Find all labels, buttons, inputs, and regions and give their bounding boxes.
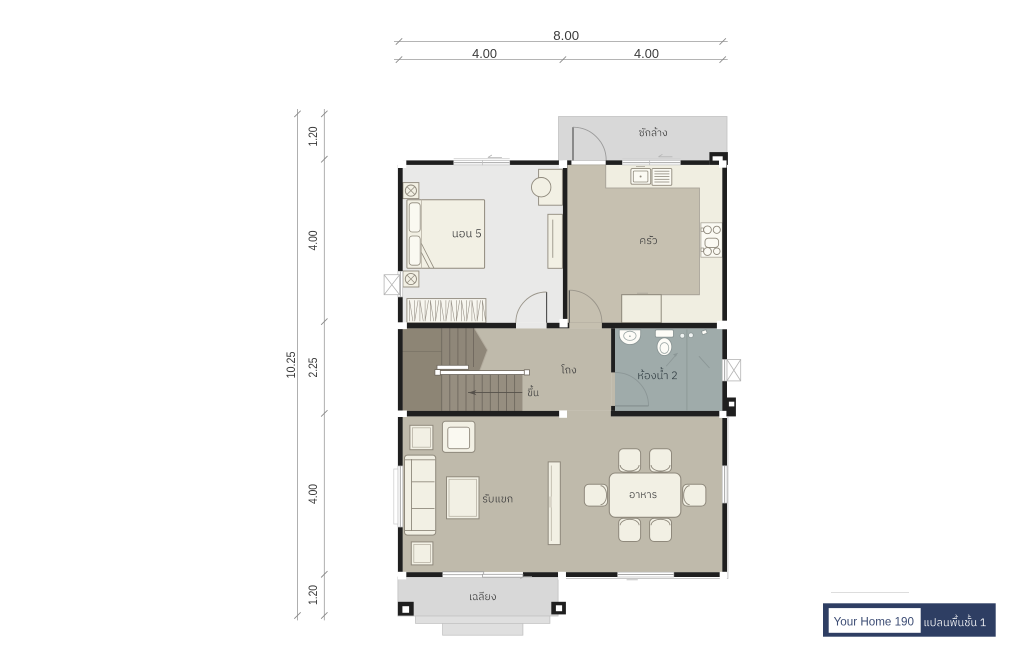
svg-text:4.00: 4.00 bbox=[472, 46, 497, 61]
svg-text:8.00: 8.00 bbox=[553, 28, 579, 43]
svg-text:10.25: 10.25 bbox=[284, 351, 298, 378]
svg-text:4.00: 4.00 bbox=[634, 46, 659, 61]
svg-text:1.20: 1.20 bbox=[306, 585, 320, 605]
svg-text:2.25: 2.25 bbox=[306, 357, 320, 377]
svg-text:1.20: 1.20 bbox=[306, 126, 320, 146]
svg-text:Your Home 190: Your Home 190 bbox=[834, 614, 915, 628]
svg-text:4.00: 4.00 bbox=[306, 484, 320, 504]
svg-text:4.00: 4.00 bbox=[306, 230, 320, 250]
